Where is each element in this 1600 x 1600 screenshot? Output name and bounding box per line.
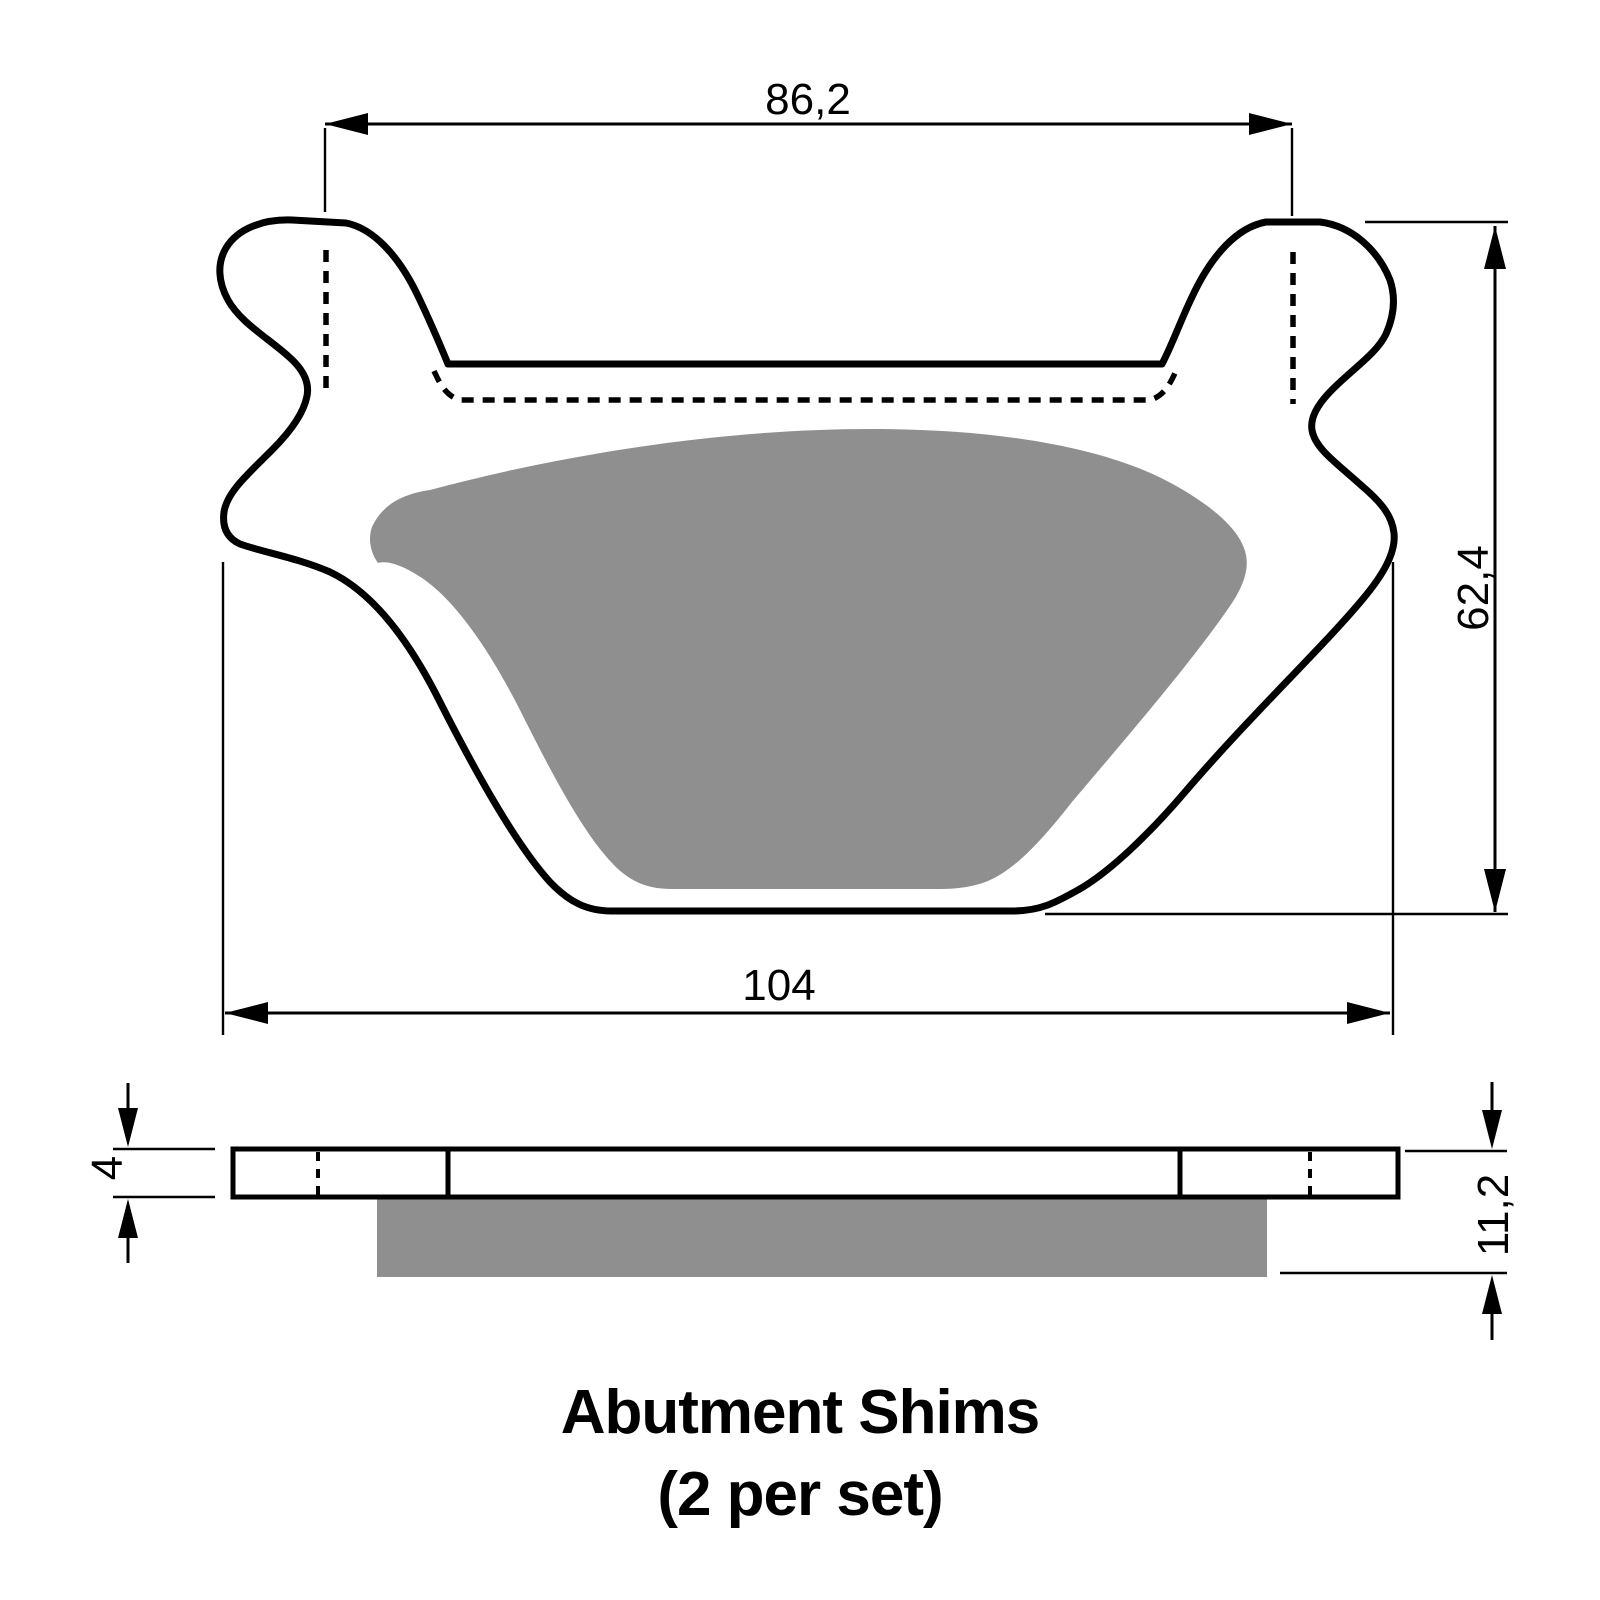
arrowhead-down xyxy=(1484,869,1506,912)
arrowhead-down xyxy=(1482,1110,1502,1149)
dimension-value-bottom-width: 104 xyxy=(742,961,815,1010)
caption-line-2: (2 per set) xyxy=(0,1454,1600,1536)
friction-material-side xyxy=(377,1195,1267,1277)
brake-pad-drawing-canvas: 86,2 62,4 104 xyxy=(0,0,1600,1600)
arrowhead-left xyxy=(225,1002,268,1024)
technical-drawing-page: 86,2 62,4 104 xyxy=(0,0,1600,1600)
arrowhead-up xyxy=(118,1199,138,1238)
top-view xyxy=(220,220,1394,911)
arrowhead-right xyxy=(1249,113,1292,135)
dimension-total-thickness: 11,2 xyxy=(1280,1082,1518,1340)
side-view xyxy=(233,1149,1398,1277)
arrowhead-left xyxy=(325,113,368,135)
dimension-value-backplate-thickness: 4 xyxy=(83,1156,132,1180)
dimension-value-top-width: 86,2 xyxy=(765,75,851,124)
dimension-top-width: 86,2 xyxy=(325,75,1292,216)
dimension-value-pad-height: 62,4 xyxy=(1449,545,1498,631)
arrowhead-down xyxy=(118,1108,138,1147)
arrowhead-up xyxy=(1484,226,1506,269)
caption: Abutment Shims (2 per set) xyxy=(0,1372,1600,1536)
arrowhead-right xyxy=(1347,1002,1390,1024)
arrowhead-up xyxy=(1482,1275,1502,1314)
dimension-backplate-thickness: 4 xyxy=(83,1083,215,1263)
dimension-value-total-thickness: 11,2 xyxy=(1469,1174,1518,1256)
backplate-side xyxy=(233,1149,1398,1197)
caption-line-1: Abutment Shims xyxy=(0,1372,1600,1454)
